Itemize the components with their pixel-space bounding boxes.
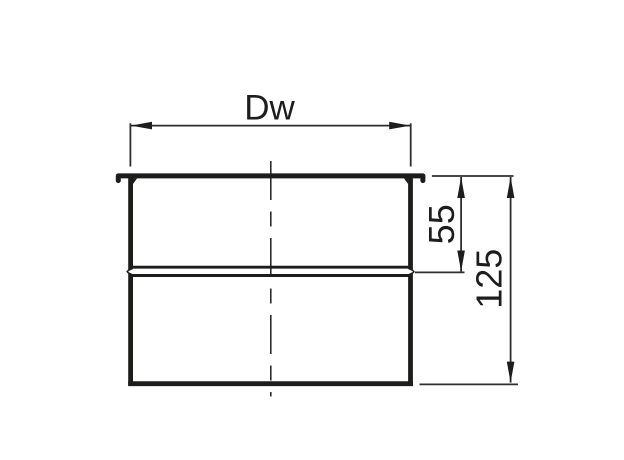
svg-text:125: 125 [469,249,510,309]
svg-text:Dw: Dw [244,89,295,128]
svg-text:55: 55 [421,204,462,244]
